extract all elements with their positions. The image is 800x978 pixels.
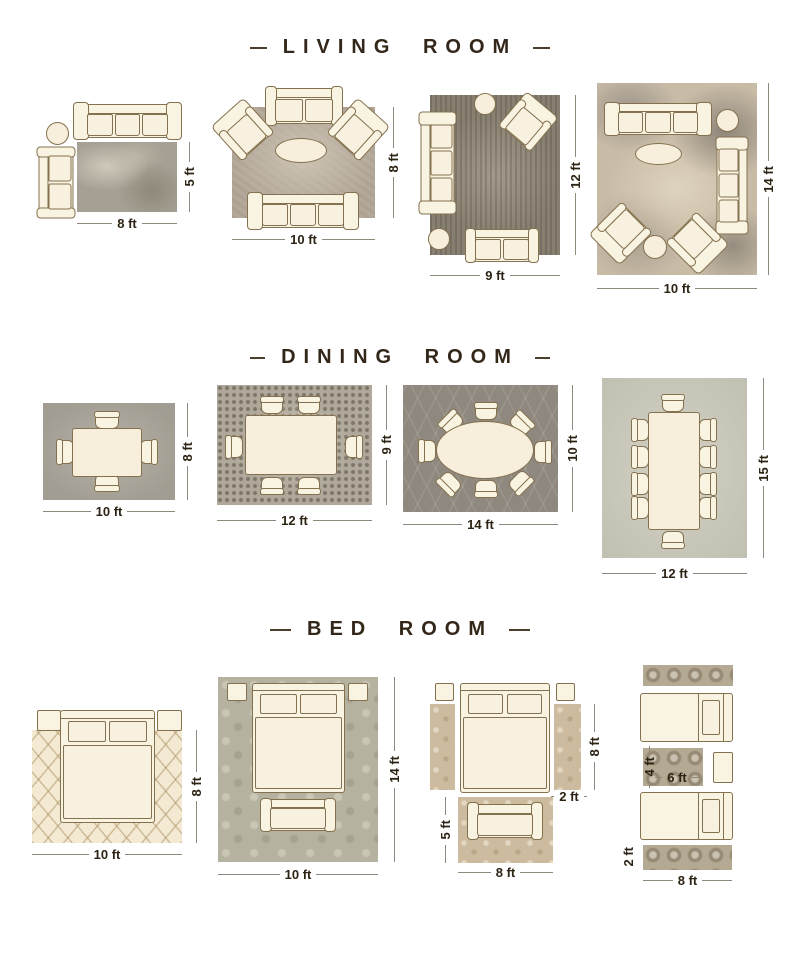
sofa-icon — [606, 103, 710, 135]
coffee-table-icon — [635, 143, 682, 165]
dim-width: 8 ft — [77, 215, 177, 231]
bench-icon — [261, 799, 335, 831]
dining-chair-icon — [662, 531, 684, 547]
dining-chair-icon — [662, 396, 684, 412]
nightstand-icon — [37, 710, 61, 731]
dining-chair-icon — [420, 440, 436, 462]
dim-height: 12 ft — [567, 95, 583, 255]
dining-table-icon — [72, 428, 142, 477]
dining-chair-icon — [699, 473, 715, 495]
dining-chair-icon — [298, 398, 320, 414]
side-table-icon — [474, 93, 496, 115]
dining-chair-icon — [140, 440, 156, 464]
bed-icon — [460, 683, 550, 793]
dining-chair-icon — [261, 398, 283, 414]
runner-rug-icon — [643, 845, 732, 870]
dining-chair-icon — [475, 404, 497, 420]
rug-icon — [77, 142, 177, 212]
dining-chair-icon — [95, 413, 119, 429]
sofa-icon — [75, 104, 180, 138]
nightstand-icon — [435, 683, 454, 701]
dim-height: 10 ft — [564, 385, 580, 512]
side-table-icon — [428, 228, 450, 250]
dim-width: 10 ft — [43, 503, 175, 519]
section-title-text: BED ROOM — [307, 618, 493, 641]
section-title-text: LIVING ROOM — [283, 36, 517, 59]
dim-foot-width: 8 ft — [458, 864, 553, 880]
loveseat-icon — [38, 147, 73, 217]
section-title-dining-room: DINING ROOM — [250, 346, 550, 369]
bed-icon — [60, 710, 155, 823]
section-title-living-room: LIVING ROOM — [250, 36, 550, 59]
dining-chair-icon — [699, 419, 715, 441]
heading-dash — [250, 47, 267, 49]
dining-table-icon — [648, 412, 700, 530]
dim-width: 14 ft — [403, 516, 558, 532]
dim-runner-width: 8 ft — [643, 872, 732, 888]
dim-width: 12 ft — [602, 565, 747, 581]
dim-height: 5 ft — [181, 142, 197, 212]
runner-rug-icon — [643, 665, 733, 686]
bed-icon — [252, 683, 345, 793]
heading-dash — [533, 47, 550, 49]
heading-dash — [535, 357, 550, 359]
dim-height: 9 ft — [378, 385, 394, 505]
heading-dash — [509, 629, 530, 631]
side-table-icon — [716, 109, 739, 132]
section-title-bed-room: BED ROOM — [270, 618, 530, 641]
nightstand-icon — [157, 710, 182, 731]
dining-chair-icon — [298, 477, 320, 493]
dining-table-icon — [245, 415, 337, 475]
nightstand-icon — [227, 683, 247, 701]
dining-chair-icon — [345, 436, 361, 458]
heading-dash — [270, 629, 291, 631]
dining-chair-icon — [633, 497, 649, 519]
coffee-table-icon — [275, 138, 327, 163]
rug-size-guide: LIVING ROOM 8 ft 5 ft 10 ft 8 ft 9 ft 12… — [0, 0, 800, 978]
dining-chair-icon — [475, 480, 497, 496]
sofa-icon — [249, 194, 357, 228]
sofa-icon — [420, 112, 454, 213]
dim-width: 10 ft — [32, 846, 182, 862]
dim-mid-width: 6 ft — [655, 769, 699, 785]
dim-width: 12 ft — [217, 512, 372, 528]
dim-height: 8 ft — [179, 403, 195, 500]
sofa-icon — [716, 137, 747, 233]
dining-chair-icon — [633, 446, 649, 468]
side-table-icon — [643, 235, 667, 259]
runner-rug-icon — [430, 704, 455, 790]
dim-height: 14 ft — [760, 83, 776, 275]
heading-dash — [250, 357, 265, 359]
nightstand-icon — [556, 683, 575, 701]
dim-width: 9 ft — [430, 267, 560, 283]
side-table-icon — [46, 122, 69, 145]
dining-chair-icon — [699, 446, 715, 468]
twin-bed-icon — [640, 792, 733, 840]
dim-height: 8 ft — [385, 107, 401, 218]
dim-height: 15 ft — [755, 378, 771, 558]
bench-icon — [468, 804, 542, 838]
dining-chair-icon — [633, 473, 649, 495]
dining-chair-icon — [261, 477, 283, 493]
dining-chair-icon — [227, 436, 243, 458]
dining-table-icon — [436, 421, 534, 479]
twin-bed-icon — [640, 693, 733, 742]
dim-runner-width: 2 ft — [551, 788, 587, 804]
dim-width: 10 ft — [597, 280, 757, 296]
nightstand-icon — [348, 683, 368, 701]
dim-runner-height: 8 ft — [586, 704, 602, 790]
dim-height: 8 ft — [188, 730, 204, 843]
dining-chair-icon — [534, 441, 550, 463]
dining-chair-icon — [699, 497, 715, 519]
dim-foot-height: 5 ft — [437, 797, 453, 863]
dim-width: 10 ft — [232, 231, 375, 247]
dim-width: 10 ft — [218, 866, 378, 882]
dim-runner-side: 2 ft — [620, 843, 636, 871]
dim-height: 14 ft — [386, 677, 402, 862]
sofa-icon — [266, 88, 342, 124]
runner-rug-icon — [554, 704, 581, 790]
section-title-text: DINING ROOM — [281, 346, 519, 369]
sofa-icon — [466, 229, 538, 262]
dining-chair-icon — [633, 419, 649, 441]
nightstand-icon — [713, 752, 733, 783]
